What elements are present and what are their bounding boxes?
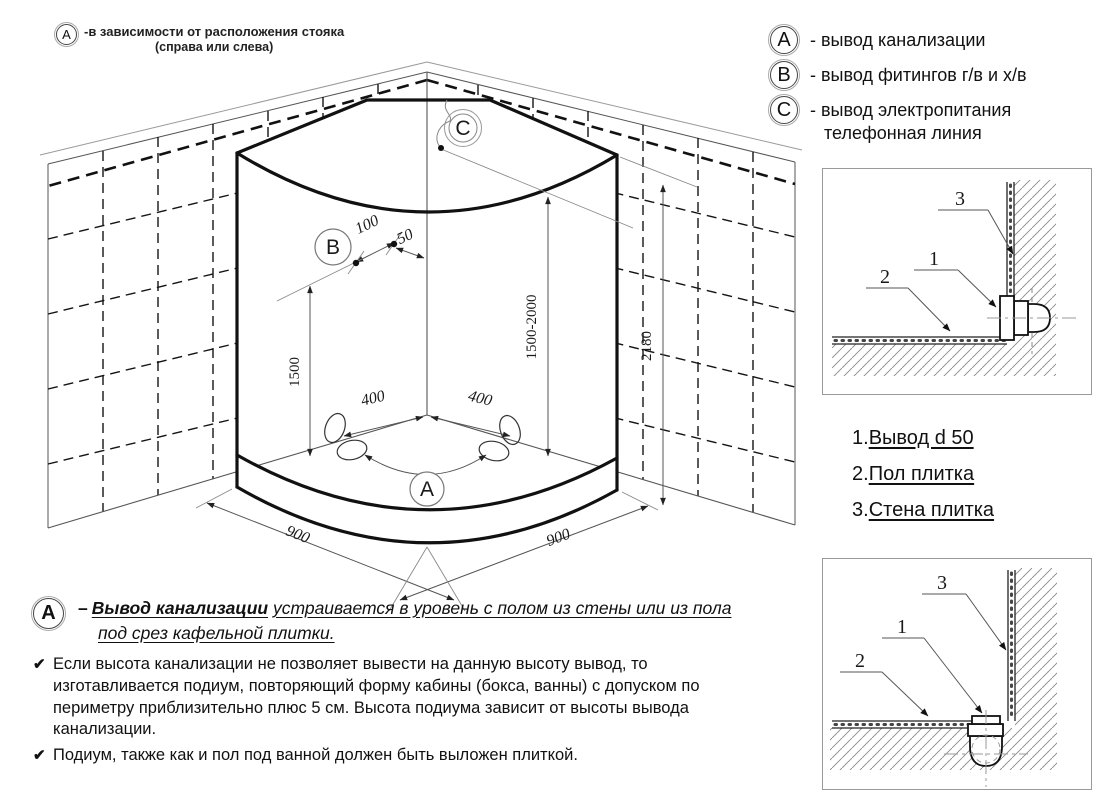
bullet-podium: ✔ Если высота канализации не позволяет в… xyxy=(33,654,793,741)
bullet-podium-text: Если высота канализации не позволяет выв… xyxy=(53,654,759,741)
parts-list-item-2: 2.Пол плитка xyxy=(852,456,994,492)
marker-a: A xyxy=(410,472,444,506)
bullet-tiling: ✔ Подиум, также как и пол под ванной дол… xyxy=(33,745,793,767)
main-drawing: 1500 1500-2000 2180 400 400 900 900 100 … xyxy=(0,0,820,620)
fitting-point-2 xyxy=(391,241,397,247)
callout-3: 3 xyxy=(937,572,947,594)
legend-item-c-label: - вывод электропитания телефонная линия xyxy=(810,96,1011,144)
detail-section-floor-outlet: 3 1 2 xyxy=(822,558,1092,790)
legend-item-b-label: - вывод фитингов г/в и х/в xyxy=(810,61,1027,87)
bottom-notes: A –Вывод канализации устраивается в уров… xyxy=(33,596,793,767)
floor-hatch xyxy=(832,344,1014,376)
riser-note-line2: (справа или слева) xyxy=(84,40,344,56)
check-icon: ✔ xyxy=(33,746,50,767)
marker-c-badge: C xyxy=(770,96,798,124)
sewage-note: A –Вывод канализации устраивается в уров… xyxy=(33,596,793,645)
dim-900-right: 900 xyxy=(544,526,572,550)
legend-item-b: B - вывод фитингов г/в и х/в xyxy=(770,61,1095,89)
wall-hatch xyxy=(1014,180,1056,376)
legend-item-c: C - вывод электропитания телефонная лини… xyxy=(770,96,1095,144)
sewage-note-line2: под срез кафельной плитки. xyxy=(78,621,732,646)
detail-section-wall-outlet: 3 1 2 xyxy=(822,168,1092,395)
callout-1: 1 xyxy=(897,616,907,638)
dash: – xyxy=(78,598,88,618)
riser-note-text: -в зависимости от расположения стояка (с… xyxy=(84,24,344,56)
legend-item-a-label: - вывод канализации xyxy=(810,26,985,52)
legend-item-c-label-line2: телефонная линия xyxy=(810,122,1011,145)
wall-hatch xyxy=(1015,568,1057,770)
svg-text:A: A xyxy=(420,478,434,501)
marker-a-badge: A xyxy=(33,598,64,629)
callout-2: 2 xyxy=(855,650,865,672)
power-outlet-point xyxy=(438,145,444,151)
dim-900-left: 900 xyxy=(283,523,312,548)
callout-1: 1 xyxy=(929,248,939,270)
marker-a-badge: A xyxy=(770,26,798,54)
legend: A - вывод канализации B - вывод фитингов… xyxy=(770,26,1095,151)
parts-list-item-3: 3.Стена плитка xyxy=(852,492,994,528)
bullet-tiling-text: Подиум, также как и пол под ванной долже… xyxy=(53,745,759,767)
callout-3: 3 xyxy=(955,188,965,210)
sewage-note-text: –Вывод канализации устраивается в уровен… xyxy=(78,596,732,645)
marker-b-badge: B xyxy=(770,61,798,89)
svg-text:B: B xyxy=(326,236,340,259)
sewage-note-line1: –Вывод канализации устраивается в уровен… xyxy=(78,596,732,621)
dim-1500: 1500 xyxy=(287,357,303,387)
svg-text:C: C xyxy=(455,117,470,140)
check-icon: ✔ xyxy=(33,655,50,741)
dim-1500-2000: 1500-2000 xyxy=(524,295,540,360)
marker-a-badge: A xyxy=(56,24,77,45)
riser-note-line1: -в зависимости от расположения стояка xyxy=(84,24,344,40)
legend-item-a: A - вывод канализации xyxy=(770,26,1095,54)
parts-list: 1.Вывод d 50 2.Пол плитка 3.Стена плитка xyxy=(852,420,994,528)
parts-list-item-1: 1.Вывод d 50 xyxy=(852,420,994,456)
note-bullets: ✔ Если высота канализации не позволяет в… xyxy=(33,654,793,767)
dim-2180: 2180 xyxy=(639,331,655,361)
riser-note: A -в зависимости от расположения стояка … xyxy=(56,24,344,56)
fitting-point-1 xyxy=(353,260,359,266)
callout-2: 2 xyxy=(880,266,890,288)
